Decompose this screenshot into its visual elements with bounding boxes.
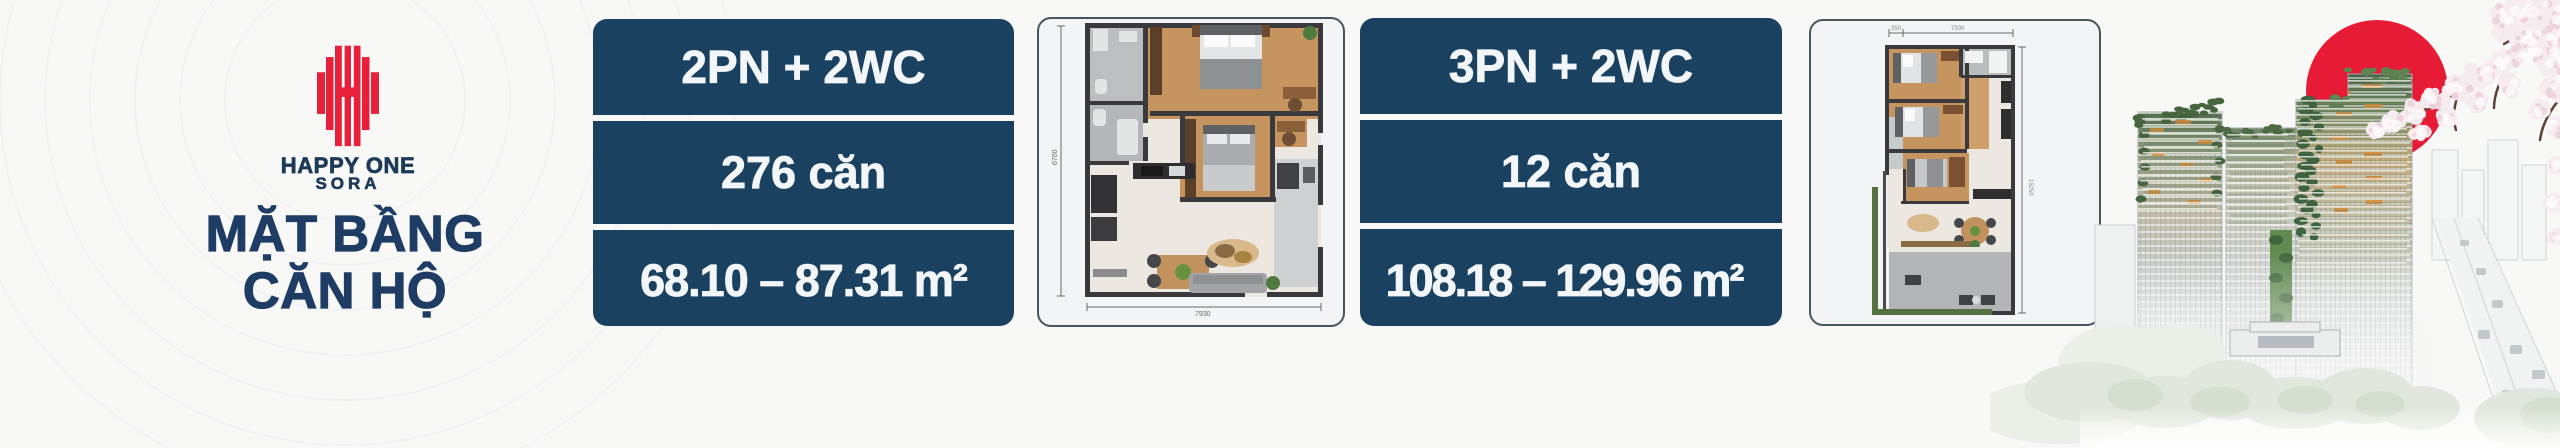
svg-text:7500: 7500	[1951, 26, 1965, 32]
svg-text:350: 350	[1891, 26, 1902, 32]
svg-text:7930: 7930	[1195, 311, 1211, 318]
svg-text:6700: 6700	[1052, 149, 1059, 165]
